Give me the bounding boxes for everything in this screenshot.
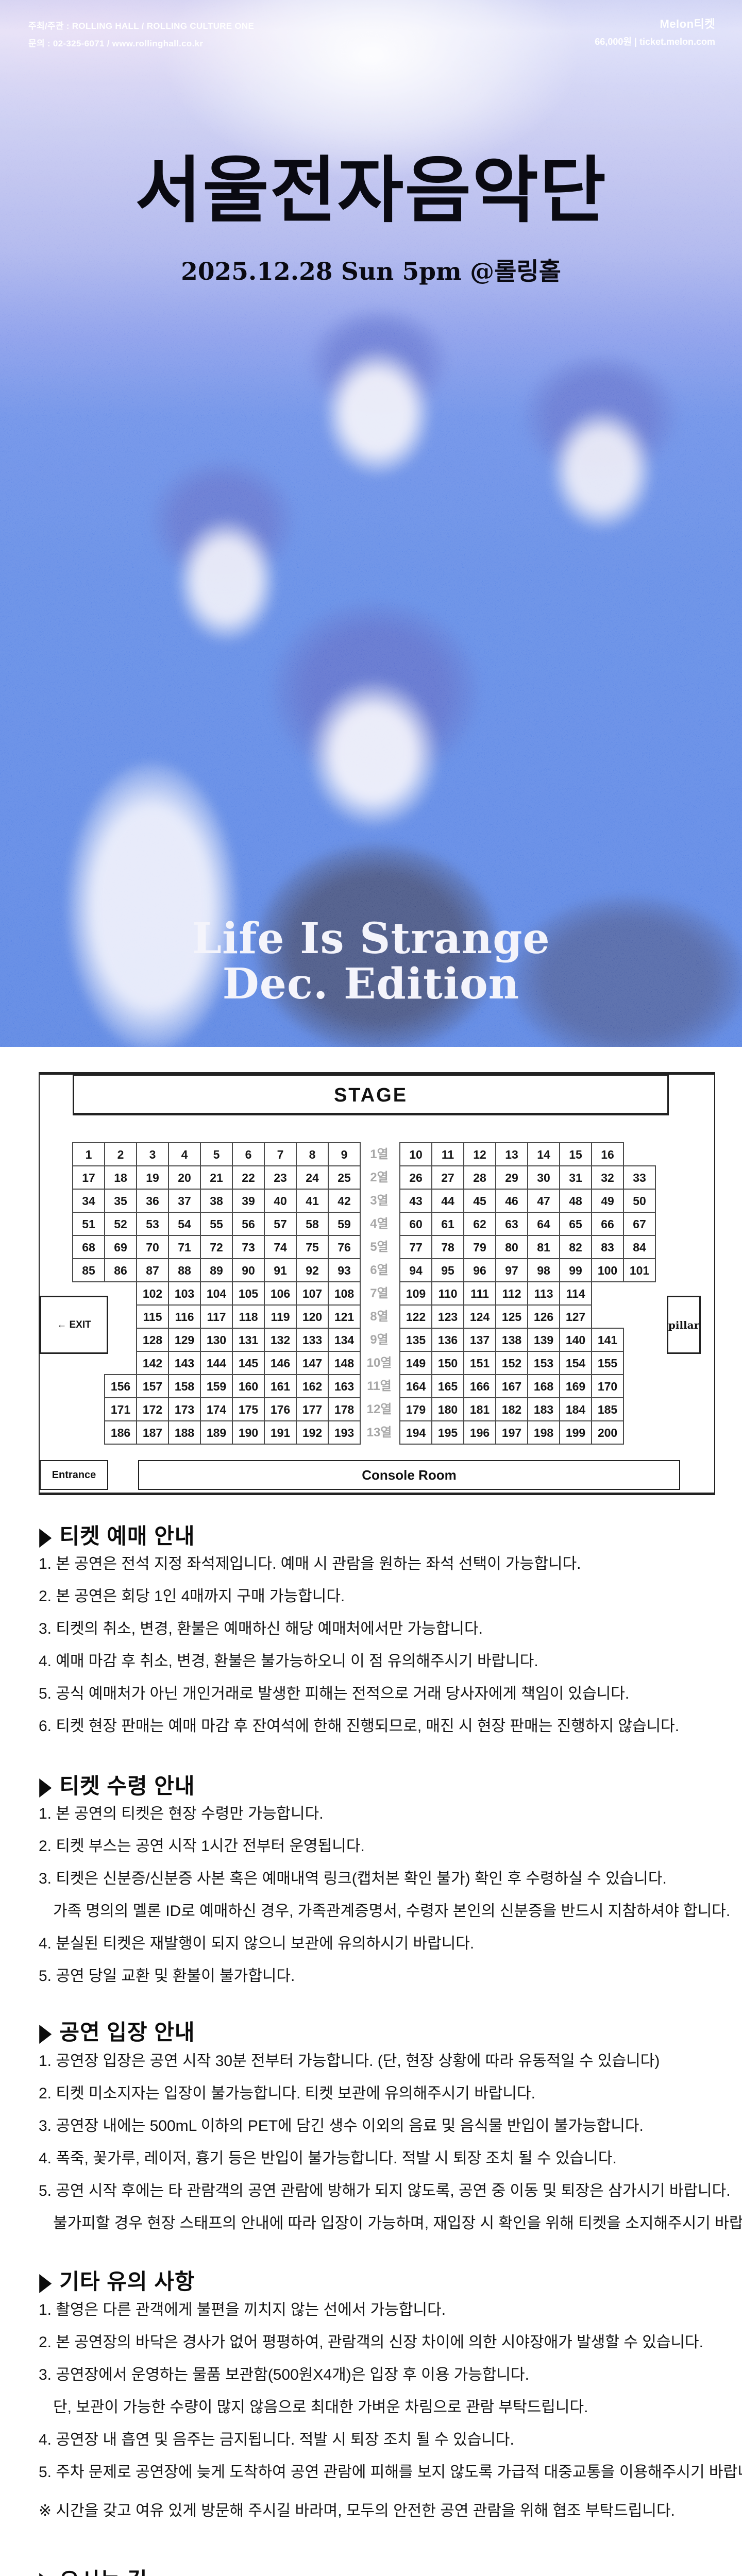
seat-cell-103: 103: [168, 1281, 201, 1306]
seat-cell-144: 144: [200, 1351, 233, 1375]
seat-cell-47: 47: [527, 1189, 560, 1213]
seat-cell-75: 75: [296, 1235, 329, 1259]
edition-title: Life Is Strange Dec. Edition: [0, 916, 742, 1007]
seat-cell-83: 83: [591, 1235, 624, 1259]
seat-cell-52: 52: [104, 1212, 137, 1236]
seat-cell-39: 39: [232, 1189, 265, 1213]
seat-cell-51: 51: [72, 1212, 105, 1236]
poster-datetime: 2025.12.28 Sun 5pm @롤링홀: [0, 251, 742, 287]
poster: 주최/주관 : ROLLING HALL / ROLLING CULTURE O…: [0, 0, 742, 1047]
seat-cell-148: 148: [328, 1351, 361, 1375]
info-line: 2. 본 공연은 회당 1인 4매까지 구매 가능합니다.: [39, 1583, 724, 1606]
seat-cell-129: 129: [168, 1328, 201, 1352]
seat-cell-136: 136: [431, 1328, 464, 1352]
section-heading: ▶티켓 수령 안내: [37, 1769, 195, 1800]
seat-cell-13: 13: [495, 1142, 528, 1166]
console-room-box: Console Room: [138, 1460, 680, 1490]
seat-cell-131: 131: [232, 1328, 265, 1352]
info-line: 3. 공연장에서 운영하는 물품 보관함(500원X4개)은 입장 후 이용 가…: [39, 2362, 724, 2384]
seat-cell-188: 188: [168, 1420, 201, 1445]
seat-cell-79: 79: [463, 1235, 496, 1259]
seat-cell-1: 1: [72, 1142, 105, 1166]
seat-cell-194: 194: [399, 1420, 432, 1445]
exit-box: ← EXIT: [40, 1296, 108, 1354]
seat-cell-133: 133: [296, 1328, 329, 1352]
seat-cell-171: 171: [104, 1397, 137, 1421]
poster-title: 서울전자음악단: [0, 152, 742, 229]
edition-line2: Dec. Edition: [0, 961, 742, 1007]
seat-cell-69: 69: [104, 1235, 137, 1259]
info-line: 1. 촬영은 다른 관객에게 불편을 끼치지 않는 선에서 가능합니다.: [39, 2297, 724, 2319]
seat-cell-117: 117: [200, 1304, 233, 1329]
seat-cell-72: 72: [200, 1235, 233, 1259]
edition-line1: Life Is Strange: [0, 916, 742, 961]
seat-cell-134: 134: [328, 1328, 361, 1352]
price-line: 66,000원 | ticket.melon.com: [595, 33, 715, 50]
section-marker-icon: ▶: [39, 2267, 52, 2296]
stage-label: STAGE: [334, 1084, 408, 1106]
exit-label: ← EXIT: [57, 1319, 91, 1331]
seat-cell-67: 67: [623, 1212, 656, 1236]
section-title: 기타 유의 사항: [59, 2269, 195, 2294]
seat-cell-22: 22: [232, 1165, 265, 1190]
info-line: 5. 공연 당일 교환 및 환불이 불가합니다.: [39, 1963, 724, 1986]
seat-cell-44: 44: [431, 1189, 464, 1213]
info-note: ※ 시간을 갖고 여유 있게 방문해 주시길 바라며, 모두의 안전한 공연 관…: [39, 2498, 724, 2520]
seat-cell-81: 81: [527, 1235, 560, 1259]
info-line: 3. 공연장 내에는 500mL 이하의 PET에 담긴 생수 이외의 음료 및…: [39, 2113, 724, 2136]
info-line: 2. 티켓 부스는 공연 시작 1시간 전부터 운영됩니다.: [39, 1833, 724, 1856]
row-label: 4열: [362, 1212, 396, 1236]
pillar-box: pillar: [667, 1296, 701, 1354]
seat-cell-25: 25: [328, 1165, 361, 1190]
seat-cell-168: 168: [527, 1374, 560, 1398]
seat-cell-161: 161: [264, 1374, 297, 1398]
seat-cell-43: 43: [399, 1189, 432, 1213]
seat-cell-41: 41: [296, 1189, 329, 1213]
seat-cell-57: 57: [264, 1212, 297, 1236]
section-title: 오시는 길: [59, 2568, 147, 2576]
seat-cell-116: 116: [168, 1304, 201, 1329]
seat-cell-109: 109: [399, 1281, 432, 1306]
seat-cell-157: 157: [136, 1374, 169, 1398]
seat-cell-189: 189: [200, 1420, 233, 1445]
seat-cell-187: 187: [136, 1420, 169, 1445]
seat-cell-89: 89: [200, 1258, 233, 1282]
seat-cell-112: 112: [495, 1281, 528, 1306]
seat-cell-63: 63: [495, 1212, 528, 1236]
seat-cell-124: 124: [463, 1304, 496, 1329]
row-label: 11열: [362, 1374, 396, 1398]
seat-cell-145: 145: [232, 1351, 265, 1375]
seat-cell-191: 191: [264, 1420, 297, 1445]
organizer-line: 주최/주관 : ROLLING HALL / ROLLING CULTURE O…: [28, 18, 254, 35]
seat-cell-90: 90: [232, 1258, 265, 1282]
seat-cell-6: 6: [232, 1142, 265, 1166]
seat-cell-170: 170: [591, 1374, 624, 1398]
seat-cell-147: 147: [296, 1351, 329, 1375]
seat-cell-160: 160: [232, 1374, 265, 1398]
poster-header-left: 주최/주관 : ROLLING HALL / ROLLING CULTURE O…: [28, 18, 254, 53]
row-label: 1열: [362, 1142, 396, 1166]
info-line: 4. 공연장 내 흡연 및 음주는 금지됩니다. 적발 시 퇴장 조치 될 수 …: [39, 2427, 724, 2449]
pillar-label: pillar: [668, 1319, 699, 1331]
info-line: 4. 예매 마감 후 취소, 변경, 환불은 불가능하오니 이 점 유의해주시기…: [39, 1648, 724, 1671]
seat-cell-64: 64: [527, 1212, 560, 1236]
section-heading: ▶공연 입장 안내: [37, 2015, 195, 2046]
seat-cell-130: 130: [200, 1328, 233, 1352]
section-marker-icon: ▶: [39, 2018, 52, 2046]
entrance-box: Entrance: [40, 1460, 108, 1490]
seat-cell-73: 73: [232, 1235, 265, 1259]
seat-cell-166: 166: [463, 1374, 496, 1398]
seat-cell-12: 12: [463, 1142, 496, 1166]
seat-cell-181: 181: [463, 1397, 496, 1421]
section-heading: ▶티켓 예매 안내: [37, 1519, 195, 1550]
seat-cell-149: 149: [399, 1351, 432, 1375]
seat-cell-30: 30: [527, 1165, 560, 1190]
seat-cell-173: 173: [168, 1397, 201, 1421]
seat-cell-50: 50: [623, 1189, 656, 1213]
seat-cell-77: 77: [399, 1235, 432, 1259]
seat-cell-2: 2: [104, 1142, 137, 1166]
seat-cell-135: 135: [399, 1328, 432, 1352]
seat-cell-71: 71: [168, 1235, 201, 1259]
seat-cell-29: 29: [495, 1165, 528, 1190]
seat-cell-110: 110: [431, 1281, 464, 1306]
seat-cell-179: 179: [399, 1397, 432, 1421]
seat-cell-46: 46: [495, 1189, 528, 1213]
seat-cell-184: 184: [559, 1397, 592, 1421]
seat-cell-54: 54: [168, 1212, 201, 1236]
seat-cell-68: 68: [72, 1235, 105, 1259]
poster-header-right: Melon티켓 66,000원 | ticket.melon.com: [595, 15, 715, 50]
seat-cell-88: 88: [168, 1258, 201, 1282]
info-line: 가족 명의의 멜론 ID로 예매하신 경우, 가족관계증명서, 수령자 본인의 …: [53, 1898, 738, 1921]
seat-cell-16: 16: [591, 1142, 624, 1166]
info-line: 6. 티켓 현장 판매는 예매 마감 후 잔여석에 한해 진행되므로, 매진 시…: [39, 1713, 724, 1736]
seat-cell-196: 196: [463, 1420, 496, 1445]
seat-cell-107: 107: [296, 1281, 329, 1306]
seat-cell-193: 193: [328, 1420, 361, 1445]
seat-cell-70: 70: [136, 1235, 169, 1259]
seat-cell-182: 182: [495, 1397, 528, 1421]
seat-cell-84: 84: [623, 1235, 656, 1259]
section-marker-icon: ▶: [39, 1521, 52, 1550]
seat-cell-34: 34: [72, 1189, 105, 1213]
seat-cell-23: 23: [264, 1165, 297, 1190]
info-line: 5. 공연 시작 후에는 타 관람객의 공연 관람에 방해가 되지 않도록, 공…: [39, 2178, 724, 2200]
row-label: 13열: [362, 1420, 396, 1445]
seat-cell-180: 180: [431, 1397, 464, 1421]
seat-cell-37: 37: [168, 1189, 201, 1213]
seat-cell-162: 162: [296, 1374, 329, 1398]
stage-area: STAGE: [73, 1074, 669, 1115]
seat-cell-60: 60: [399, 1212, 432, 1236]
seat-cell-140: 140: [559, 1328, 592, 1352]
melon-ticket-logo: Melon티켓: [595, 15, 715, 33]
row-label: 2열: [362, 1165, 396, 1190]
seat-cell-27: 27: [431, 1165, 464, 1190]
seat-cell-146: 146: [264, 1351, 297, 1375]
section-marker-icon: ▶: [39, 1771, 52, 1800]
seat-cell-33: 33: [623, 1165, 656, 1190]
seat-cell-101: 101: [623, 1258, 656, 1282]
seat-cell-98: 98: [527, 1258, 560, 1282]
row-label: 6열: [362, 1258, 396, 1282]
seat-cell-150: 150: [431, 1351, 464, 1375]
seat-cell-197: 197: [495, 1420, 528, 1445]
section-heading: ▶오시는 길: [37, 2563, 148, 2576]
seat-cell-42: 42: [328, 1189, 361, 1213]
seat-cell-185: 185: [591, 1397, 624, 1421]
seat-cell-163: 163: [328, 1374, 361, 1398]
seat-cell-172: 172: [136, 1397, 169, 1421]
info-line: 1. 공연장 입장은 공연 시작 30분 전부터 가능합니다. (단, 현장 상…: [39, 2048, 724, 2071]
seat-cell-137: 137: [463, 1328, 496, 1352]
seat-cell-32: 32: [591, 1165, 624, 1190]
contact-line: 문의 : 02-325-6071 / www.rollinghall.co.kr: [28, 35, 254, 53]
seat-cell-155: 155: [591, 1351, 624, 1375]
seat-cell-99: 99: [559, 1258, 592, 1282]
seat-cell-143: 143: [168, 1351, 201, 1375]
seat-cell-61: 61: [431, 1212, 464, 1236]
seat-cell-174: 174: [200, 1397, 233, 1421]
seat-cell-156: 156: [104, 1374, 137, 1398]
seat-cell-114: 114: [559, 1281, 592, 1306]
seat-cell-154: 154: [559, 1351, 592, 1375]
seat-cell-139: 139: [527, 1328, 560, 1352]
seat-cell-115: 115: [136, 1304, 169, 1329]
seat-cell-169: 169: [559, 1374, 592, 1398]
concert-info-page: 주최/주관 : ROLLING HALL / ROLLING CULTURE O…: [0, 0, 742, 2576]
seat-cell-11: 11: [431, 1142, 464, 1166]
seatmap-wall-right: [714, 1072, 715, 1495]
seat-cell-111: 111: [463, 1281, 496, 1306]
seat-cell-76: 76: [328, 1235, 361, 1259]
seat-cell-86: 86: [104, 1258, 137, 1282]
seat-cell-19: 19: [136, 1165, 169, 1190]
seat-cell-85: 85: [72, 1258, 105, 1282]
console-room-label: Console Room: [362, 1467, 456, 1483]
seat-cell-4: 4: [168, 1142, 201, 1166]
seat-cell-164: 164: [399, 1374, 432, 1398]
seat-cell-49: 49: [591, 1189, 624, 1213]
seat-cell-20: 20: [168, 1165, 201, 1190]
seatmap-wall-bottom: [39, 1493, 715, 1495]
seat-cell-198: 198: [527, 1420, 560, 1445]
seat-cell-105: 105: [232, 1281, 265, 1306]
seat-map: STAGE 1열123456789101112131415162열1718192…: [39, 1072, 715, 1496]
seat-cell-87: 87: [136, 1258, 169, 1282]
seat-cell-177: 177: [296, 1397, 329, 1421]
seat-cell-106: 106: [264, 1281, 297, 1306]
section-heading: ▶기타 유의 사항: [37, 2264, 195, 2296]
seat-cell-35: 35: [104, 1189, 137, 1213]
seat-cell-175: 175: [232, 1397, 265, 1421]
seat-cell-142: 142: [136, 1351, 169, 1375]
seat-cell-165: 165: [431, 1374, 464, 1398]
seat-cell-132: 132: [264, 1328, 297, 1352]
seat-cell-167: 167: [495, 1374, 528, 1398]
seat-cell-122: 122: [399, 1304, 432, 1329]
info-line: 2. 본 공연장의 바닥은 경사가 없어 평평하여, 관람객의 신장 차이에 의…: [39, 2329, 724, 2352]
seat-cell-127: 127: [559, 1304, 592, 1329]
seat-cell-48: 48: [559, 1189, 592, 1213]
seat-cell-113: 113: [527, 1281, 560, 1306]
seat-cell-153: 153: [527, 1351, 560, 1375]
seat-cell-53: 53: [136, 1212, 169, 1236]
seat-cell-15: 15: [559, 1142, 592, 1166]
seat-cell-91: 91: [264, 1258, 297, 1282]
seat-cell-74: 74: [264, 1235, 297, 1259]
seat-cell-92: 92: [296, 1258, 329, 1282]
seat-cell-18: 18: [104, 1165, 137, 1190]
row-label: 8열: [362, 1304, 396, 1329]
seat-cell-120: 120: [296, 1304, 329, 1329]
seat-cell-195: 195: [431, 1420, 464, 1445]
info-line: 1. 본 공연은 전석 지정 좌석제입니다. 예매 시 관람을 원하는 좌석 선…: [39, 1551, 724, 1573]
seat-cell-119: 119: [264, 1304, 297, 1329]
seat-cell-178: 178: [328, 1397, 361, 1421]
seat-cell-8: 8: [296, 1142, 329, 1166]
seat-cell-82: 82: [559, 1235, 592, 1259]
seat-cell-176: 176: [264, 1397, 297, 1421]
seat-cell-38: 38: [200, 1189, 233, 1213]
seat-cell-141: 141: [591, 1328, 624, 1352]
seat-cell-152: 152: [495, 1351, 528, 1375]
seat-cell-159: 159: [200, 1374, 233, 1398]
seat-cell-138: 138: [495, 1328, 528, 1352]
seat-cell-126: 126: [527, 1304, 560, 1329]
seat-cell-100: 100: [591, 1258, 624, 1282]
section-title: 티켓 예매 안내: [59, 1524, 195, 1548]
info-line: 3. 티켓의 취소, 변경, 환불은 예매하신 해당 예매처에서만 가능합니다.: [39, 1616, 724, 1638]
row-label: 10열: [362, 1351, 396, 1375]
section-marker-icon: ▶: [39, 2566, 52, 2576]
seat-cell-158: 158: [168, 1374, 201, 1398]
seat-cell-56: 56: [232, 1212, 265, 1236]
info-line: 4. 분실된 티켓은 재발행이 되지 않으니 보관에 유의하시기 바랍니다.: [39, 1930, 724, 1953]
seat-cell-102: 102: [136, 1281, 169, 1306]
seat-cell-200: 200: [591, 1420, 624, 1445]
info-line: 4. 폭죽, 꽃가루, 레이저, 흉기 등은 반입이 불가능합니다. 적발 시 …: [39, 2145, 724, 2168]
seat-cell-62: 62: [463, 1212, 496, 1236]
row-label: 9열: [362, 1328, 396, 1352]
seat-cell-125: 125: [495, 1304, 528, 1329]
seat-cell-17: 17: [72, 1165, 105, 1190]
seat-cell-58: 58: [296, 1212, 329, 1236]
section-title: 티켓 수령 안내: [59, 1774, 195, 1798]
entrance-label: Entrance: [52, 1469, 96, 1481]
seat-cell-66: 66: [591, 1212, 624, 1236]
seat-cell-31: 31: [559, 1165, 592, 1190]
seat-cell-95: 95: [431, 1258, 464, 1282]
seat-cell-151: 151: [463, 1351, 496, 1375]
seat-cell-78: 78: [431, 1235, 464, 1259]
seat-cell-5: 5: [200, 1142, 233, 1166]
row-label: 3열: [362, 1189, 396, 1213]
seat-cell-7: 7: [264, 1142, 297, 1166]
seat-cell-94: 94: [399, 1258, 432, 1282]
info-line: 2. 티켓 미소지자는 입장이 불가능합니다. 티켓 보관에 유의해주시기 바랍…: [39, 2080, 724, 2103]
section-title: 공연 입장 안내: [59, 2020, 195, 2044]
info-line: 불가피할 경우 현장 스태프의 안내에 따라 입장이 가능하며, 재입장 시 확…: [53, 2210, 738, 2233]
seat-cell-97: 97: [495, 1258, 528, 1282]
seat-cell-123: 123: [431, 1304, 464, 1329]
seat-cell-24: 24: [296, 1165, 329, 1190]
seat-cell-26: 26: [399, 1165, 432, 1190]
seat-cell-59: 59: [328, 1212, 361, 1236]
seat-cell-186: 186: [104, 1420, 137, 1445]
row-label: 12열: [362, 1397, 396, 1421]
seat-cell-108: 108: [328, 1281, 361, 1306]
seat-cell-121: 121: [328, 1304, 361, 1329]
row-label: 5열: [362, 1235, 396, 1259]
info-line: 단, 보관이 가능한 수량이 많지 않음으로 최대한 가벼운 차림으로 관람 부…: [53, 2394, 738, 2417]
seat-cell-55: 55: [200, 1212, 233, 1236]
seat-cell-9: 9: [328, 1142, 361, 1166]
seat-cell-118: 118: [232, 1304, 265, 1329]
row-label: 7열: [362, 1281, 396, 1306]
seat-cell-65: 65: [559, 1212, 592, 1236]
seat-cell-14: 14: [527, 1142, 560, 1166]
seat-cell-36: 36: [136, 1189, 169, 1213]
seat-cell-199: 199: [559, 1420, 592, 1445]
seat-cell-21: 21: [200, 1165, 233, 1190]
info-line: 3. 티켓은 신분증/신분증 사본 혹은 예매내역 링크(캡처본 확인 불가) …: [39, 1866, 724, 1888]
seat-cell-190: 190: [232, 1420, 265, 1445]
seat-cell-104: 104: [200, 1281, 233, 1306]
seat-cell-10: 10: [399, 1142, 432, 1166]
info-line: 5. 공식 예매처가 아닌 개인거래로 발생한 피해는 전적으로 거래 당사자에…: [39, 1681, 724, 1703]
info-line: 1. 본 공연의 티켓은 현장 수령만 가능합니다.: [39, 1801, 724, 1823]
seat-cell-3: 3: [136, 1142, 169, 1166]
seat-cell-183: 183: [527, 1397, 560, 1421]
seat-cell-45: 45: [463, 1189, 496, 1213]
seatmap-wall-left: [39, 1072, 40, 1495]
seat-cell-40: 40: [264, 1189, 297, 1213]
seat-cell-128: 128: [136, 1328, 169, 1352]
seat-cell-80: 80: [495, 1235, 528, 1259]
seat-cell-96: 96: [463, 1258, 496, 1282]
info-line: 5. 주차 문제로 공연장에 늦게 도착하여 공연 관람에 피해를 보지 않도록…: [39, 2459, 724, 2482]
seat-cell-93: 93: [328, 1258, 361, 1282]
seat-cell-28: 28: [463, 1165, 496, 1190]
seat-cell-192: 192: [296, 1420, 329, 1445]
